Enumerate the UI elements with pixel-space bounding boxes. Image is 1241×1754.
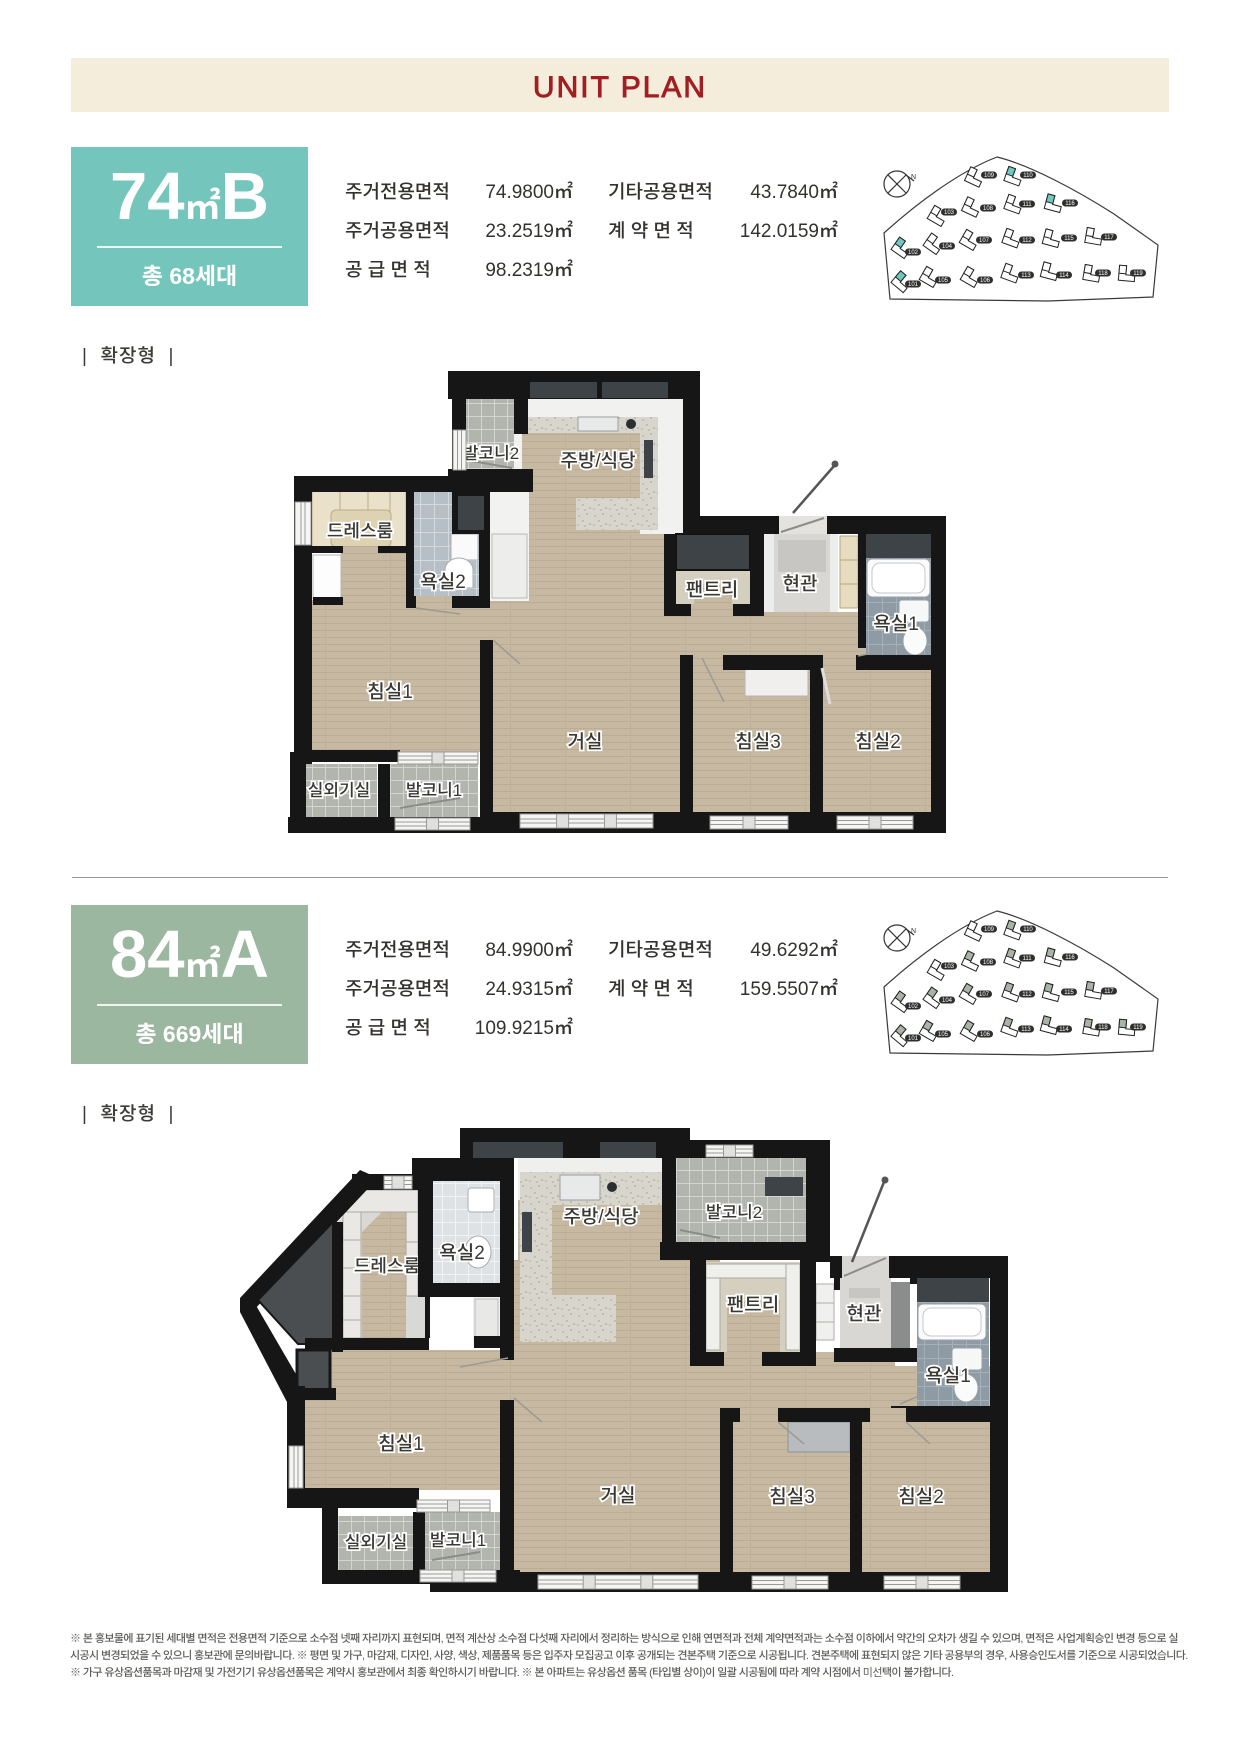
svg-text:드레스룸: 드레스룸 bbox=[327, 521, 393, 541]
svg-text:드레스룸: 드레스룸 bbox=[354, 1256, 420, 1276]
svg-text:107: 107 bbox=[979, 992, 990, 998]
svg-text:욕실1: 욕실1 bbox=[925, 1366, 971, 1387]
svg-text:주방/식당: 주방/식당 bbox=[560, 451, 635, 472]
svg-text:팬트리: 팬트리 bbox=[727, 1295, 779, 1316]
svg-text:욕실1: 욕실1 bbox=[873, 614, 919, 635]
svg-text:103: 103 bbox=[944, 964, 955, 970]
svg-text:118: 118 bbox=[1098, 1025, 1108, 1031]
svg-text:침실1: 침실1 bbox=[378, 1434, 424, 1455]
svg-text:116: 116 bbox=[1065, 955, 1075, 961]
svg-text:104: 104 bbox=[942, 998, 953, 1004]
svg-text:팬트리: 팬트리 bbox=[686, 580, 738, 601]
svg-text:현관: 현관 bbox=[847, 1304, 882, 1325]
svg-text:실외기실: 실외기실 bbox=[345, 1533, 408, 1552]
svg-text:발코니2: 발코니2 bbox=[463, 444, 519, 463]
svg-text:115: 115 bbox=[1064, 990, 1074, 996]
svg-text:현관: 현관 bbox=[783, 574, 818, 595]
svg-text:거실: 거실 bbox=[601, 1486, 636, 1507]
svg-text:109: 109 bbox=[984, 927, 995, 933]
svg-text:침실3: 침실3 bbox=[735, 732, 781, 753]
svg-text:110: 110 bbox=[1023, 927, 1033, 933]
svg-text:117: 117 bbox=[1104, 989, 1114, 995]
svg-text:119: 119 bbox=[1133, 1025, 1143, 1031]
svg-text:주방/식당: 주방/식당 bbox=[563, 1207, 638, 1228]
svg-text:발코니2: 발코니2 bbox=[706, 1203, 762, 1222]
svg-text:욕실2: 욕실2 bbox=[439, 1243, 485, 1264]
svg-text:N: N bbox=[911, 928, 916, 935]
svg-text:111: 111 bbox=[1022, 956, 1032, 962]
svg-text:114: 114 bbox=[1059, 1027, 1069, 1033]
svg-text:침실1: 침실1 bbox=[367, 682, 413, 703]
svg-text:101: 101 bbox=[908, 1036, 919, 1042]
svg-text:발코니1: 발코니1 bbox=[430, 1531, 486, 1550]
svg-text:102: 102 bbox=[908, 1004, 919, 1010]
svg-text:거실: 거실 bbox=[568, 732, 603, 753]
svg-text:욕실2: 욕실2 bbox=[420, 572, 466, 593]
svg-text:105: 105 bbox=[938, 1032, 949, 1038]
svg-text:113: 113 bbox=[1021, 1027, 1031, 1033]
svg-text:108: 108 bbox=[983, 960, 994, 966]
svg-text:112: 112 bbox=[1022, 992, 1032, 998]
svg-text:침실2: 침실2 bbox=[855, 732, 901, 753]
svg-text:106: 106 bbox=[980, 1032, 991, 1038]
svg-text:침실2: 침실2 bbox=[898, 1487, 944, 1508]
svg-text:침실3: 침실3 bbox=[769, 1487, 815, 1508]
